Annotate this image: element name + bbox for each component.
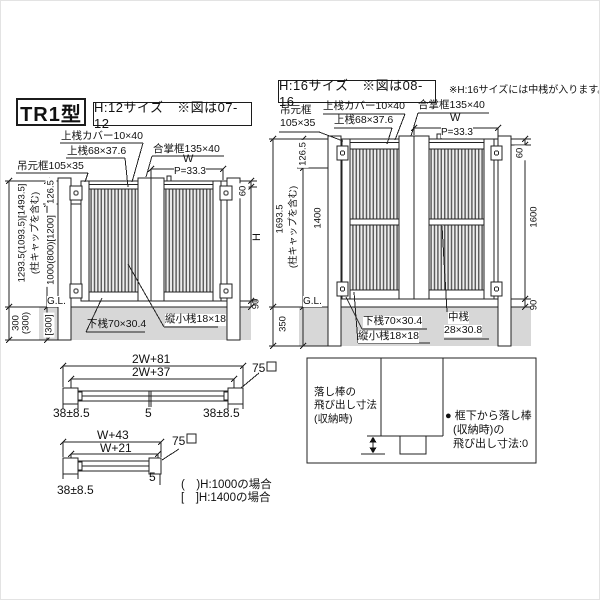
dim-hinge-top-gap-left: 60 <box>238 184 249 199</box>
drop-bar-caption-line2: 飛び出し寸法 <box>314 400 377 412</box>
dim-double-gap-center: 5 <box>145 407 152 420</box>
note-mid-rail: ※H:16サイズには中桟が入ります。 <box>449 85 600 96</box>
dim-single-inner: W+21 <box>100 442 132 455</box>
dim-pitch-left: P=33.3 <box>174 166 206 177</box>
dim-total-height-right: 1693.5 <box>275 204 286 233</box>
label-top-rail-right: 上桟68×37.6 <box>334 115 393 127</box>
legend-h1400: [ ]H:1400の場合 <box>181 492 270 505</box>
label-meeting-stile-right: 合掌框135×40 <box>418 100 485 112</box>
legend-h1000: ( )H:1000の場合 <box>181 479 272 492</box>
dim-hinge-bottom-gap-right: 90 <box>529 300 540 311</box>
drop-bar-caption-line1: 落し棒の <box>314 387 356 399</box>
drop-bar-note-line2: (収納時)の <box>453 424 504 436</box>
label-hinge-stile-right-1: 吊元框 <box>280 105 312 117</box>
dim-pitch-right: P=33.3 <box>441 127 473 138</box>
dim-width-left: W <box>183 153 193 165</box>
dim-below-ground-b: (300) <box>21 312 32 334</box>
gate-spec-drawing-page: TR1型 H:12サイズ ※図は07-12 上桟カバー10×40 上桟68×37… <box>0 0 600 600</box>
dim-single-post-size: 75 <box>172 435 185 448</box>
dim-below-ground-right: 350 <box>278 316 289 332</box>
dim-height-right: 1600 <box>529 204 540 229</box>
drop-bar-note-line3: 飛び出し寸法:0 <box>453 438 528 450</box>
dim-double-gap-left: 38±8.5 <box>53 407 90 420</box>
dim-hinge-top-gap-right: 60 <box>515 146 526 161</box>
label-bottom-rail-left: 下桟70×30.4 <box>87 319 146 331</box>
dim-double-gap-right: 38±8.5 <box>203 407 240 420</box>
label-vertical-rail-right: 縦小桟18×18 <box>358 331 419 343</box>
dim-width-right: W <box>450 112 460 124</box>
model-name: TR1型 <box>20 98 82 127</box>
drop-bar-caption-line3: (収納時) <box>314 414 353 426</box>
drop-bar-note-line1: ● 框下から落し棒 <box>445 410 532 422</box>
label-top-rail-left: 上桟68×37.6 <box>67 146 126 158</box>
dim-incl-cap-right: (柱キャップを含む) <box>285 186 299 268</box>
dim-single-gap: 38±8.5 <box>57 484 94 497</box>
dim-top-offset-right: 126.5 <box>298 140 309 168</box>
size-variant-h12-label: H:12サイズ ※図は07-12 <box>94 97 251 131</box>
label-top-rail-cover-right: 上桟カバー10×40 <box>323 101 405 113</box>
ground-line-label-left: G.L. <box>47 296 66 307</box>
dim-gate-height-left: 1000(800)[1200] <box>46 213 57 287</box>
label-mid-rail-right-2: 28×30.8 <box>444 325 482 337</box>
dim-gate-height-right: 1400 <box>313 205 324 230</box>
dim-incl-cap-left: (柱キャップを含む) <box>27 192 41 274</box>
label-hinge-stile-right-2: 105×35 <box>280 118 315 130</box>
dim-double-post-size: 75 <box>252 362 265 375</box>
label-mid-rail-right-1: 中桟 <box>448 312 469 324</box>
label-hinge-stile-left: 吊元框105×35 <box>17 161 84 173</box>
dim-double-inner: 2W+37 <box>132 366 170 379</box>
dim-single-edge: 5 <box>149 471 156 484</box>
dim-top-offset-left: 126.5 <box>46 178 57 206</box>
dim-height-symbol-left: H <box>251 233 263 241</box>
label-top-rail-cover-left: 上桟カバー10×40 <box>61 131 143 143</box>
label-bottom-rail-right: 下桟70×30.4 <box>363 316 422 328</box>
ground-line-label-right: G.L. <box>303 296 322 307</box>
label-vertical-rail-left: 縦小桟18×18 <box>165 314 226 326</box>
dim-below-ground-c: [300] <box>44 312 55 337</box>
dim-total-height-left: 1293.5(1093.5)[1493.5] <box>17 184 28 283</box>
model-badge: TR1型 <box>16 98 86 126</box>
size-variant-h12: H:12サイズ ※図は07-12 <box>93 102 252 126</box>
dim-hinge-bottom-gap-left: 90 <box>251 299 262 310</box>
